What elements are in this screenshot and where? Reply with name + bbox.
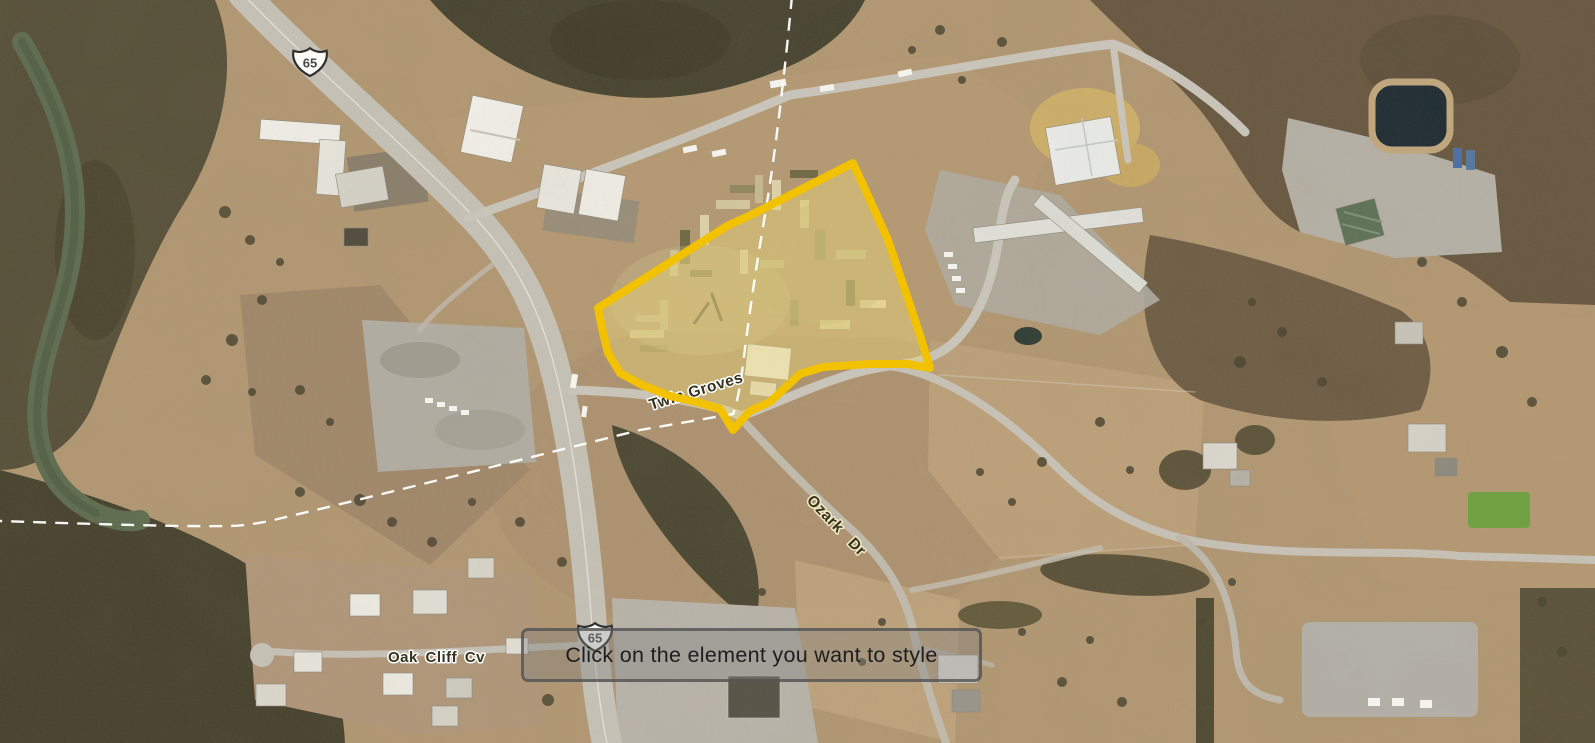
aerial-map-canvas[interactable]: Twin Groves Ozark Dr Oak Cliff Cv 65 65 … [0, 0, 1595, 743]
shield-top-number: 65 [303, 56, 317, 71]
oak-cliff-cv-label: Oak Cliff Cv [388, 649, 485, 666]
style-picker-tooltip: Click on the element you want to style [521, 628, 982, 682]
style-picker-tooltip-text: Click on the element you want to style [565, 643, 937, 668]
